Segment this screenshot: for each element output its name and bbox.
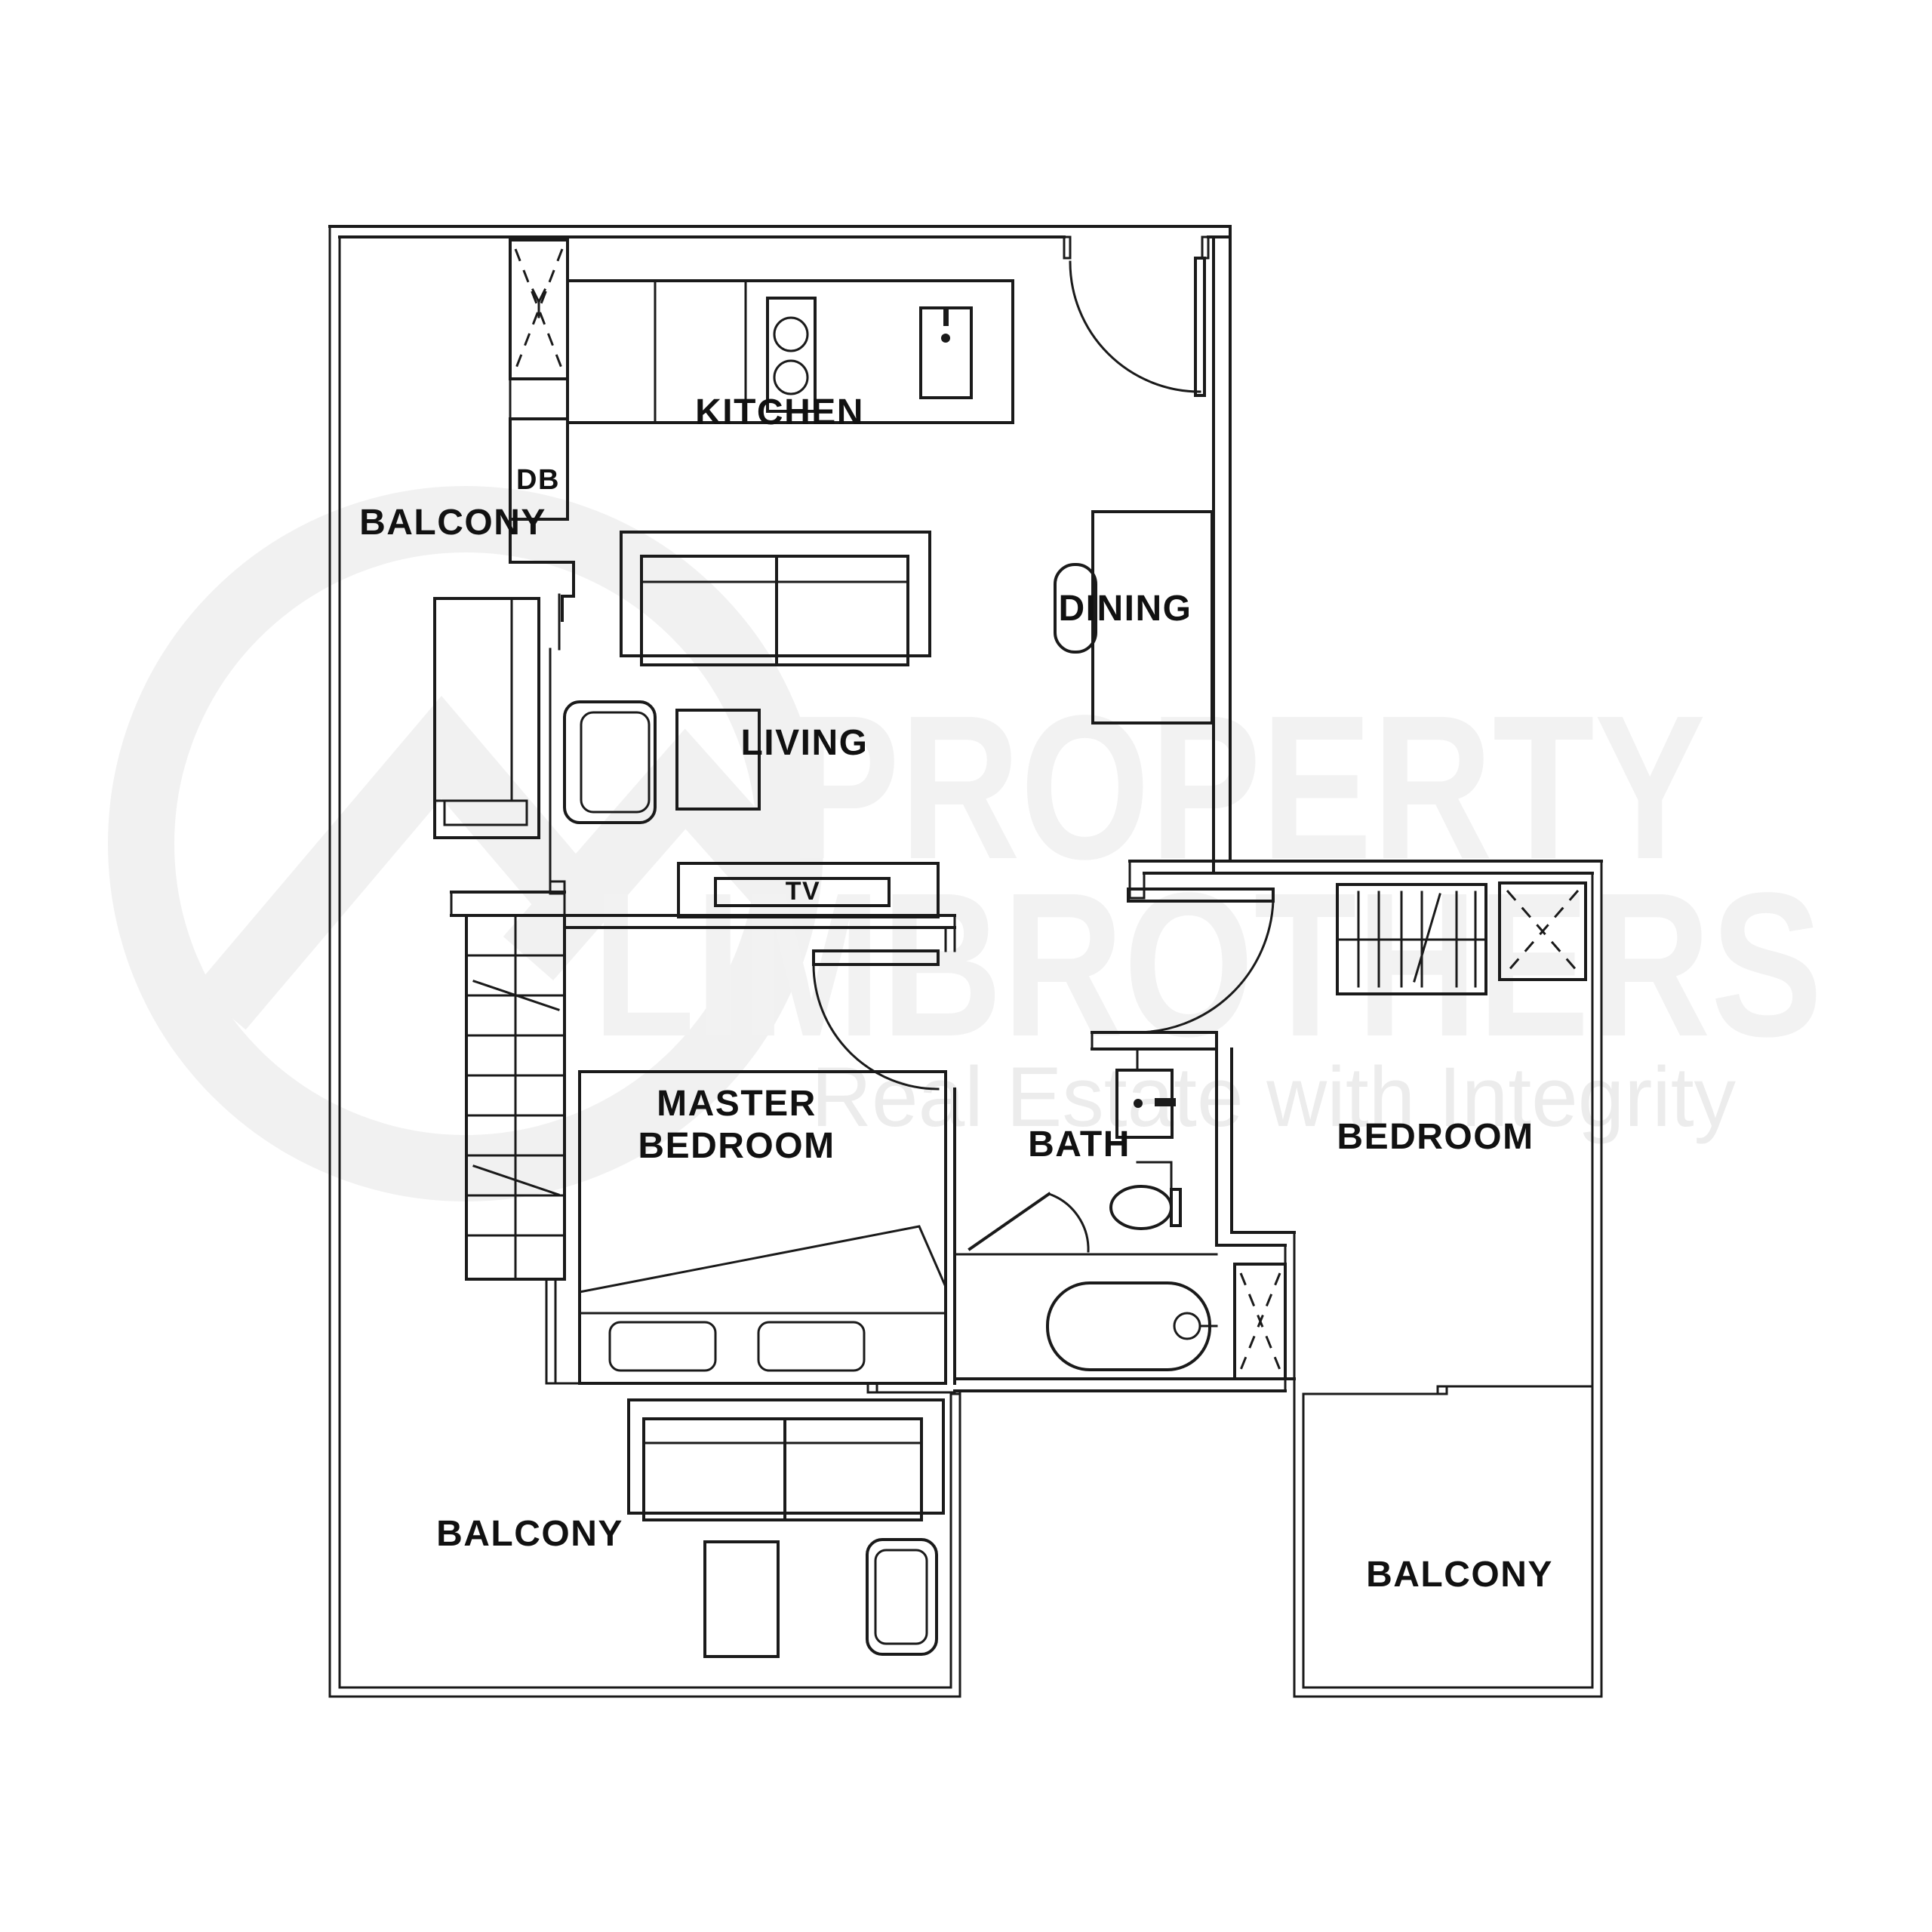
pillow [758, 1322, 864, 1371]
bathtub-tap [1174, 1313, 1200, 1339]
balcony-sofa-seat [785, 1419, 921, 1520]
shower-screen [970, 1194, 1049, 1249]
door-swing-arc [1070, 262, 1200, 392]
toilet-tank [1171, 1189, 1180, 1226]
floor-plan-svg: PROPERTY LIMBROTHERS Real Estate with In… [0, 0, 1932, 1932]
basin-fitting [1155, 1098, 1176, 1106]
shower-screen-arc [1049, 1194, 1088, 1251]
master-bedroom-label-line2: BEDROOM [638, 1126, 835, 1166]
watermark: PROPERTY LIMBROTHERS Real Estate with In… [141, 519, 1823, 1168]
toilet [1111, 1186, 1171, 1229]
balcony-sofa-seat [644, 1419, 785, 1520]
tv-label: TV [786, 877, 820, 906]
db-label: DB [516, 464, 560, 496]
watermark-tagline: Real Estate with Integrity [811, 1050, 1736, 1144]
balcony-bottom-right-label: BALCONY [1366, 1555, 1553, 1595]
entrance-door [1064, 237, 1208, 395]
master-bedroom-label-line1: MASTER [657, 1084, 817, 1124]
door-jamb [1064, 237, 1070, 258]
sofa-seat [777, 556, 908, 665]
shaft-y-mark [533, 290, 545, 317]
balcony-bottom-right: BALCONY [1366, 1555, 1553, 1595]
balcony-bottom-left: BALCONY [436, 1400, 943, 1657]
balcony-armchair-seat [875, 1550, 927, 1644]
door-leaf [1195, 258, 1204, 395]
balcony-table [705, 1542, 778, 1657]
watermark-text-line2: LIMBROTHERS [592, 850, 1823, 1079]
stove-burner [774, 318, 808, 351]
bath-label: BATH [1028, 1124, 1131, 1164]
dining-label: DINING [1059, 589, 1192, 629]
living-label: LIVING [740, 723, 868, 763]
wall-jog [1137, 1162, 1171, 1189]
kitchen-label: KITCHEN [695, 392, 864, 432]
sink-tap [943, 308, 949, 326]
balcony-bottom-left-label: BALCONY [436, 1514, 623, 1554]
basin-tap [1134, 1099, 1143, 1108]
bathtub [1048, 1283, 1210, 1370]
door-jamb [1202, 237, 1208, 258]
blanket-fold [580, 1226, 946, 1292]
sink-drain [941, 334, 950, 343]
stove-burner [774, 361, 808, 394]
balcony-top-left-label: BALCONY [359, 503, 546, 543]
floor-plan-image: PROPERTY LIMBROTHERS Real Estate with In… [0, 0, 1932, 1932]
pillow [610, 1322, 715, 1371]
bedroom-label: BEDROOM [1337, 1117, 1534, 1157]
